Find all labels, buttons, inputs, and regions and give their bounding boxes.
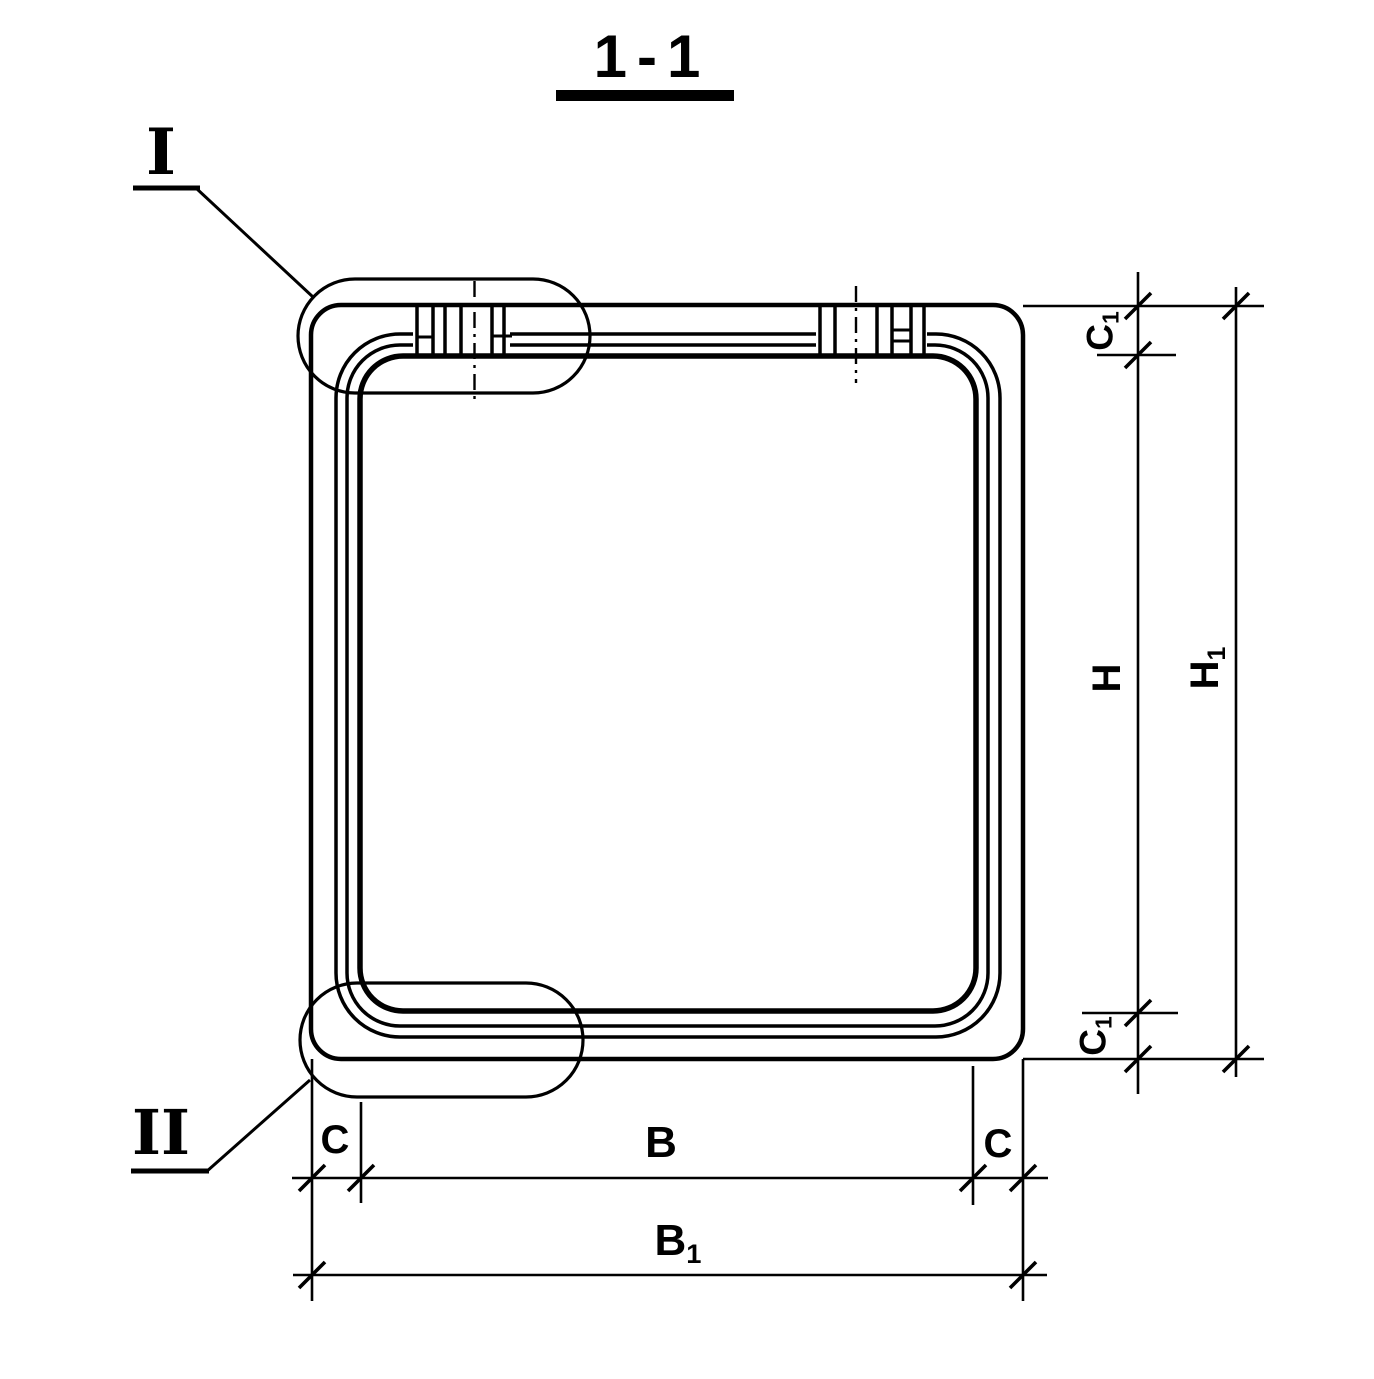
top-joint-left: [413, 307, 512, 357]
callout-detail-I: I: [146, 121, 176, 185]
dim-label-h: H: [1087, 664, 1127, 693]
right-dimension-lines: [1023, 272, 1264, 1094]
dim-label-b1: B1: [655, 1219, 702, 1263]
dim-label-c-left: C: [321, 1120, 350, 1160]
section-outer-contour: [311, 305, 1023, 1059]
section-title-underline: [556, 90, 734, 101]
dim-label-b: B: [645, 1121, 677, 1165]
section-title: 1-1: [594, 27, 711, 87]
section-inner-contours: [336, 334, 1000, 1037]
callout-detail-II: II: [132, 1102, 190, 1164]
culvert-section-linework: [0, 0, 1374, 1379]
top-joint-right: [816, 307, 927, 357]
dim-label-c1-bottom: C1: [1075, 1016, 1112, 1056]
technical-drawing-section-1-1: 1-1 I II C1 H H1 C1 C B C B1: [0, 0, 1374, 1379]
dim-label-c-right: C: [984, 1124, 1013, 1164]
joint-centerlines: [475, 281, 857, 399]
dim-label-h1: H1: [1185, 647, 1225, 690]
dim-label-c1-top: C1: [1082, 311, 1119, 351]
callout-leaders: [131, 188, 313, 1172]
